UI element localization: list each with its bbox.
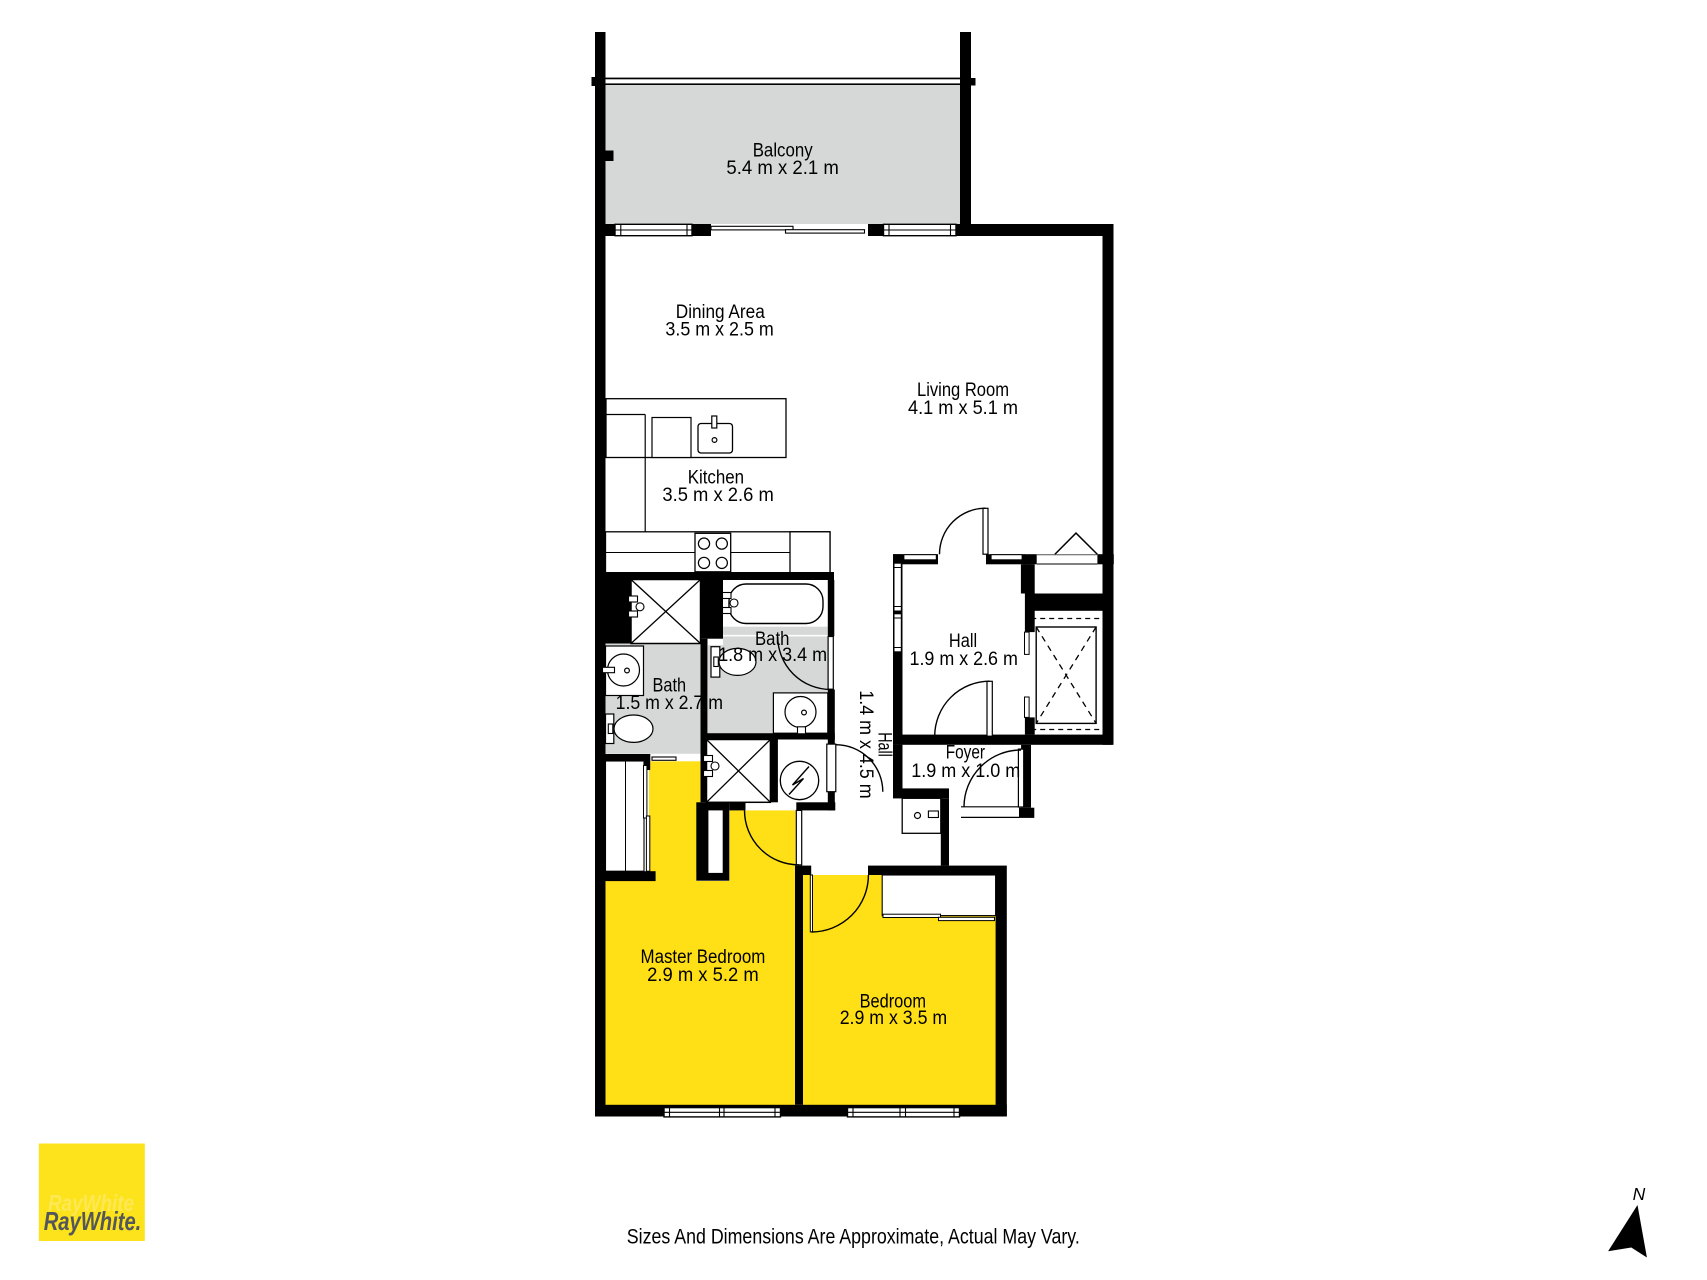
svg-text:1.5 m x 2.7 m: 1.5 m x 2.7 m <box>616 693 723 714</box>
svg-text:1.8 m x 3.4 m: 1.8 m x 3.4 m <box>718 645 827 666</box>
svg-text:5.4 m x 2.1 m: 5.4 m x 2.1 m <box>726 158 839 179</box>
svg-text:1.9 m x 1.0 m: 1.9 m x 1.0 m <box>911 761 1020 782</box>
svg-text:4.1 m x 5.1 m: 4.1 m x 5.1 m <box>908 398 1018 419</box>
svg-text:2.9 m x 3.5 m: 2.9 m x 3.5 m <box>840 1008 948 1029</box>
svg-text:N: N <box>1633 1184 1646 1204</box>
svg-text:RayWhite.: RayWhite. <box>44 1206 142 1236</box>
svg-text:Sizes And Dimensions Are Appro: Sizes And Dimensions Are Approximate, Ac… <box>627 1226 1080 1249</box>
svg-text:1.4 m x 4.5 m: 1.4 m x 4.5 m <box>855 690 876 798</box>
svg-text:1.9 m x 2.6 m: 1.9 m x 2.6 m <box>910 649 1018 670</box>
svg-text:2.9 m x 5.2 m: 2.9 m x 5.2 m <box>647 965 759 986</box>
svg-text:3.5 m x 2.5 m: 3.5 m x 2.5 m <box>665 320 773 341</box>
svg-text:3.5 m x 2.6 m: 3.5 m x 2.6 m <box>662 485 773 506</box>
